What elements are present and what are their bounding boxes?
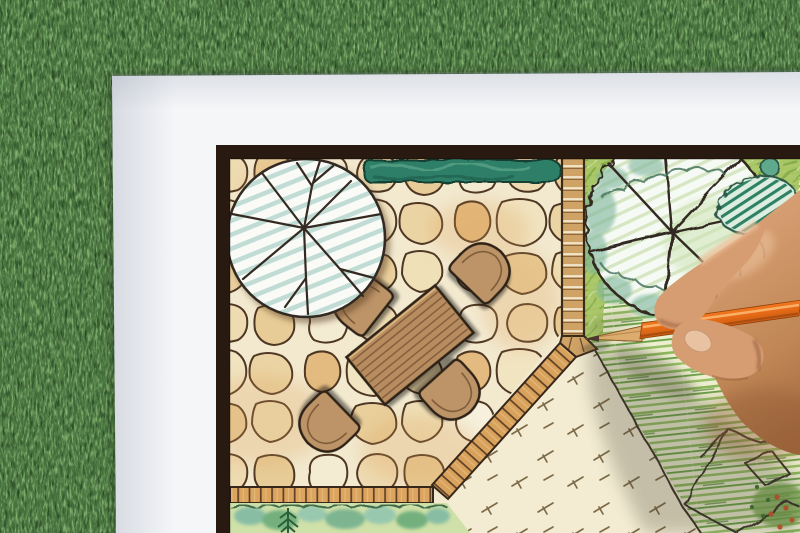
paper-shade-left bbox=[112, 76, 175, 533]
photo-canvas bbox=[0, 0, 800, 533]
brick-joints bbox=[230, 487, 433, 503]
shrub-border bbox=[230, 503, 470, 533]
clipped-hedge bbox=[363, 160, 560, 182]
deciduous-tree-symbol bbox=[227, 159, 385, 317]
walkway-rungs bbox=[562, 158, 584, 336]
brick-edging-horizontal bbox=[230, 487, 433, 503]
paper-shade-top bbox=[112, 70, 800, 112]
teal-shrub bbox=[761, 158, 779, 176]
